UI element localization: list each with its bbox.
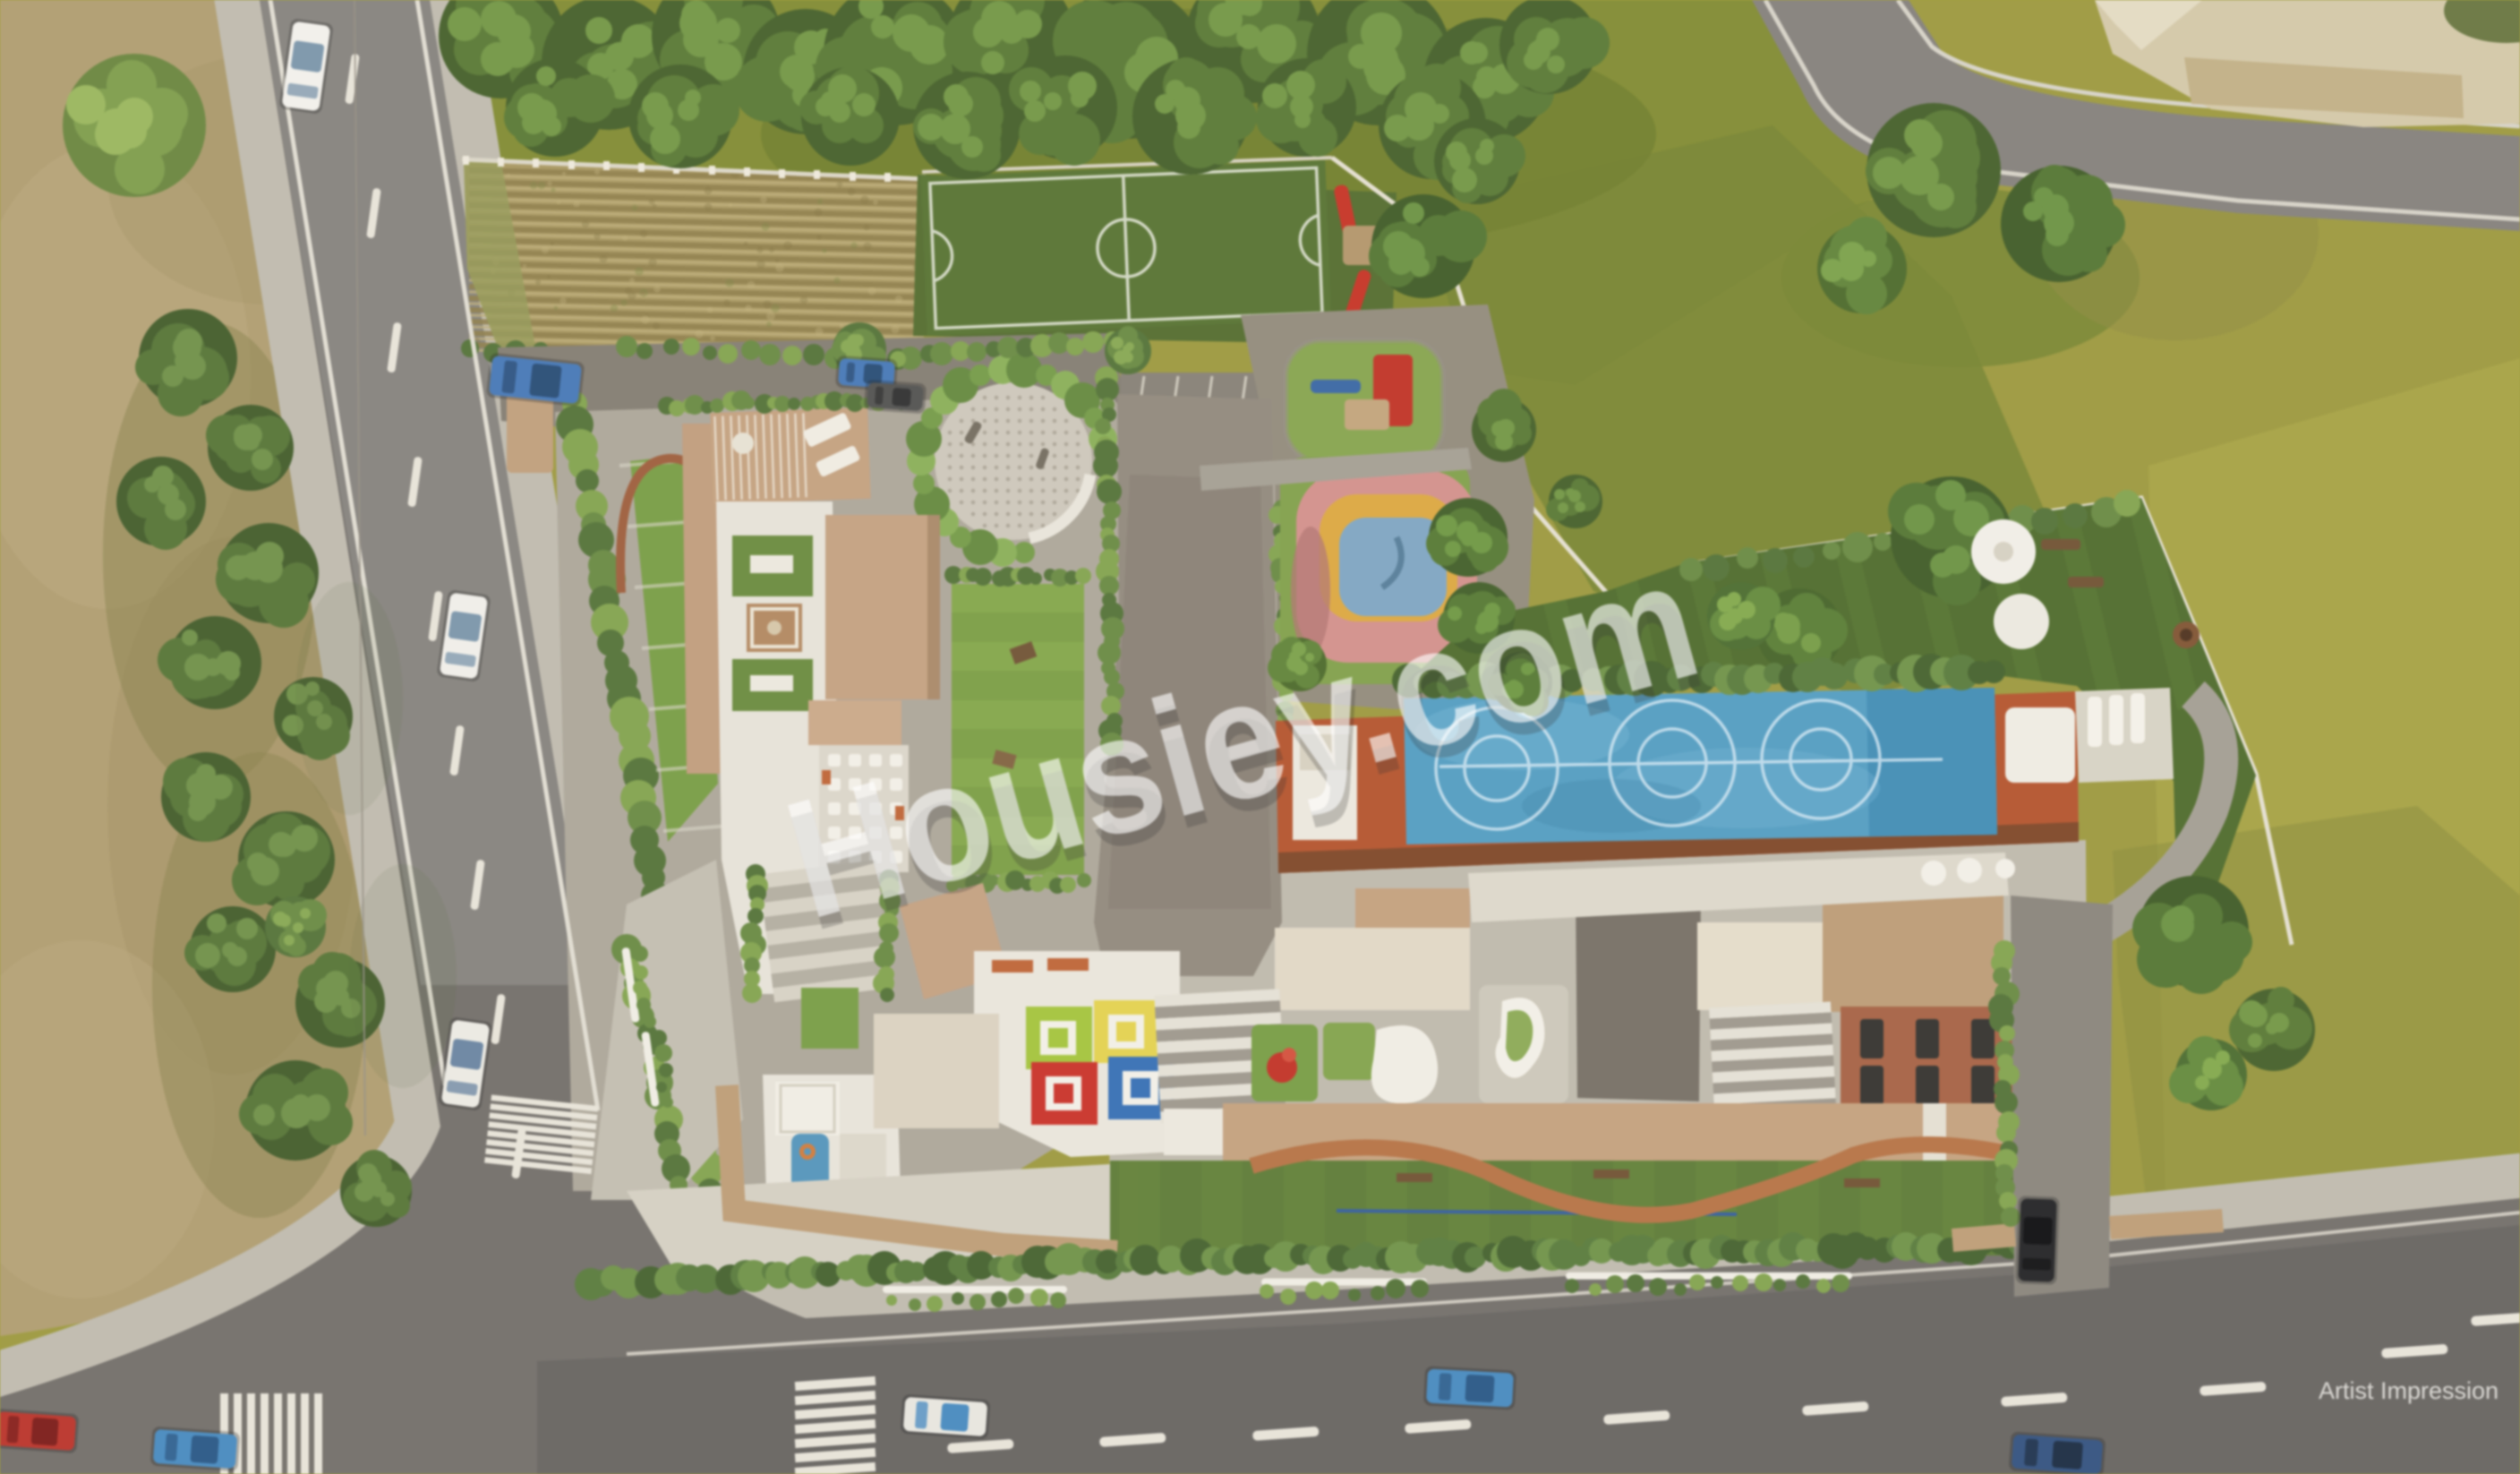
svg-text:Artist Impression: Artist Impression bbox=[2319, 1377, 2499, 1404]
